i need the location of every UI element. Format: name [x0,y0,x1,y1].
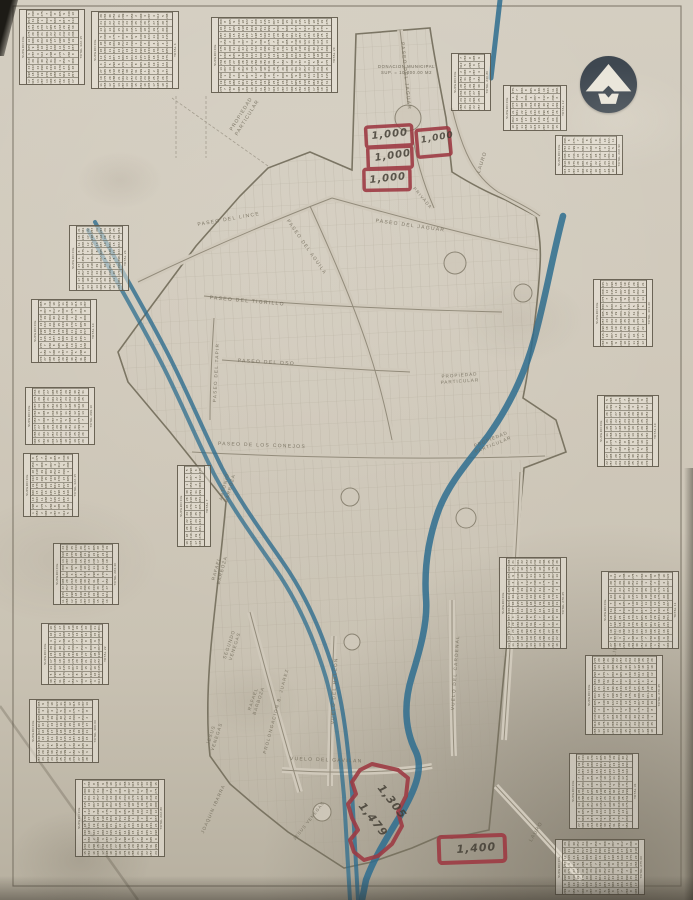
table-column: 315.40 13 287.25 14 300.00 15 262.80 16 … [593,663,656,670]
table-column: 1 350.00 2 300.00 3 287.50 4 312.40 5 29… [511,93,560,100]
table-column: 287.25 14 300.00 15 262.80 16 245.60 17 … [33,402,88,409]
table-column: 2 300.00 3 287.50 4 [459,68,484,75]
owner-label: JOAQUIN IBARRA [200,784,227,835]
table-column: 288.45 21 301.20 22 257.35 23 242.10 24 … [507,558,560,565]
lot-table-content: SUPERFICIE11 268.90 12 315.40 13 287.25 … [54,544,118,604]
table-column: 275.00 7 260.45 8 305.20 9 240.80 10 322… [601,295,646,302]
table-column: 310.15 19 275.90 20 288.45 21 301.20 22 … [563,159,616,167]
table-column: 315.40 13 287.25 14 300.00 15 262.80 16 … [601,331,646,338]
table-column: 305.60 28 218.95 29 284.30 30 252.75 31 … [37,714,92,721]
table-column: 23 242.10 24 296.85 25 233.50 26 270.25 … [39,321,90,328]
street-label: VUELO DEL HALCON [330,657,338,724]
table-total-row: TOTAL 12 [560,86,567,130]
lot-table-content: SUPERFICIE11 268.90 12 315.40 13 287.25 … [92,12,178,88]
table-column: 198.75 18 310.15 19 275.90 20 288.45 21 … [27,71,78,78]
table-total-row: TOTAL 10 [652,396,659,466]
table-column: 287.50 4 312.40 5 298.60 6 275.00 7 260.… [563,860,638,867]
lot-table: SUPERFICIE270.25 27 305.60 28 218.95 29 … [32,300,96,362]
table-column: 2 300.00 3 287.50 4 312.40 5 298.60 6 27… [577,815,632,822]
table-total-row: TOTAL 31 [632,754,639,828]
table-column: 10 322.15 11 268.90 12 315.40 13 287.25 … [31,495,72,502]
table-column: 10 322.15 11 268.90 12 315.40 13 287.25 … [609,627,672,634]
table-column: 350.00 2 300.00 3 287.50 4 312.40 5 298.… [601,302,646,309]
table-column: 287.50 4 312.40 5 298.60 6 275.00 7 260.… [37,741,92,748]
table-column: 288.45 21 301.20 22 257.35 23 242.10 24 … [33,430,88,437]
table-total-row: TOTAL 22 [102,624,109,684]
table-column: 315.40 13 287.25 14 300.00 15 262.80 16 … [83,801,158,808]
table-column: 275.00 7 260.45 8 305.20 9 240.80 10 322… [219,85,331,92]
table-column: 24 296.85 25 233.50 [185,510,204,517]
table-column: 30 252.75 31 299.10 [185,488,204,495]
table-total-row: TOTAL 270.25 [560,558,567,648]
table-column: 270.25 27 305.60 28 218.95 29 284.30 30 … [39,355,90,362]
street-label: PASEO DEL OSO [238,358,295,367]
table-header: SUPERFICIE [570,754,577,828]
table-header: SUPERFICIE [92,12,99,88]
table-column: 11 268.90 12 315.40 13 287.25 14 300.00 … [605,431,652,438]
company-logo [580,56,637,113]
table-column: 1 350.00 2 300.00 3 287.50 4 312.40 5 29… [83,835,158,842]
table-column: 4 312.40 5 298.60 6 275.00 7 260.45 8 30… [49,637,102,644]
lot-table: SUPERFICIE27 305.60 28 218.95 29 284.30 … [602,572,678,648]
table-total-row: TOTAL 11 [672,572,679,648]
table-column: 13 287.25 14 300.00 15 262.80 16 245.60 … [99,26,172,33]
table-column: 296.85 25 233.50 26 270.25 27 305.60 28 … [563,151,616,159]
table-column: 300.00 15 262.80 16 245.60 17 198.75 18 … [31,488,72,495]
lot-table-content: SUPERFICIE16 245.60 17 198.7518 310.15 1… [178,466,210,546]
table-column: 305.20 9 240.80 10 322.15 11 268.90 12 3… [27,44,78,51]
table-column: 218.95 29 284.30 30 252.75 31 299.10 1 3… [507,620,560,627]
table-column: 3 287.50 4 312.40 5 298.60 6 275.00 7 26… [609,634,672,641]
table-column: 9 240.80 10 322.15 11 268.90 12 315.40 1… [563,881,638,888]
table-column: 268.90 12 315.40 13 287.25 14 300.00 15 … [593,727,656,734]
table-column: 245.60 17 198.75 18 310.15 19 275.90 20 … [601,280,646,287]
table-total-row: TOTAL 300.00 [92,700,99,762]
table-column: 245.60 17 198.75 18 310.15 19 275.90 20 … [507,634,560,641]
table-column: 24 296.85 25 233.50 26 270.25 27 305.60 … [609,613,672,620]
table-column: 27 305.60 28 218.95 29 284.30 30 252.75 … [99,67,172,74]
table-column: 260.45 8 305.20 9 240.80 10 322.15 11 26… [61,564,112,571]
table-column: 1 350.00 2 300.00 [185,481,204,488]
street-label: PASEO DEL TAPIR [212,343,220,403]
table-column: 25 233.50 26 270.25 27 305.60 28 218.95 … [577,754,632,761]
table-column: 252.75 31 299.10 1 350.00 2 300.00 3 287… [27,17,78,24]
table-total-row: TOTAL 270.25 [656,656,663,734]
street-label: VUELO DEL CARDENAL [450,635,460,710]
table-header: SUPERFICIE [54,544,61,604]
table-column: 31 299.10 1 350.00 2 300.00 3 287.50 4 3… [605,403,652,410]
table-column: 275.90 20 288.45 21 301.20 22 257.35 23 … [33,395,88,402]
table-column: 26 270.25 27 305.60 28 218.95 29 284.30 … [577,788,632,795]
table-column: 14 300.00 15 262.80 16 245.60 17 198.75 … [27,37,78,44]
lot-table: SUPERFICIE15 262.80 16 245.60 17 198.75 … [76,780,164,856]
table-column: 257.35 23 242.10 24 296.85 25 233.50 26 … [507,627,560,634]
table-column: 25 233.50 26 270.25 27 305.60 28 218.95 … [27,23,78,30]
scanned-plat-map-sheet: PASEO DEL JAGUARPASEO DEL LINCEPASEO DEL… [0,0,693,900]
owner-label: PROPIEDAD PARTICULAR [472,430,512,456]
lot-table-content: SUPERFICIE27 305.60 28 218.95 29 284.30 … [602,572,678,648]
table-column: 5 298.60 6 275.00 7 260.45 8 305.20 9 24… [27,10,78,17]
table-column: 275.00 7 260.45 8 305.20 9 240.80 10 322… [39,341,90,348]
table-header: SUPERFICIE [30,700,37,762]
table-column: 233.50 26 270.25 27 305.60 28 218.95 29 … [33,388,88,395]
table-column: 299.10 1 350.00 2 300.00 3 287.50 4 312.… [219,72,331,79]
table-header: SUPERFICIE [178,466,185,546]
owner-label: RAFAEL BARBOZA [246,684,266,715]
table-column: 240.80 10 322.15 11 268.90 12 315.40 13 … [83,828,158,835]
table-column: 14 300.00 15 262.80 16 245.60 17 198.75 … [609,593,672,600]
arrow-up-emblem-icon [580,56,637,113]
table-column: 26 270.25 27 305.60 [185,502,204,509]
table-column: 4 312.40 5 298.60 6 275.00 7 260.45 8 30… [83,808,158,815]
table-column: 301.20 22 257.35 23 242.10 24 296.85 25 … [507,593,560,600]
table-column: 21 301.20 22 257.35 23 242.10 24 296.85 … [605,417,652,424]
table-column: 23 242.10 24 296.85 25 233.50 26 270.25 … [49,651,102,658]
table-header: SUPERFICIE [556,136,563,174]
table-total-row: TOTAL 322.15 [72,454,79,516]
lot-table-content: SUPERFICIE27 305.60 28 218.95 29 284.30 … [570,754,638,828]
table-header: SUPERFICIE [26,388,33,444]
table-header: SUPERFICIE [20,10,27,84]
table-column: 284.30 30 252.75 31 299.10 1 350.00 2 30… [83,787,158,794]
table-column: 288.45 21 301.20 22 257.35 [459,103,484,110]
table-column: 5 298.60 6 275.00 7 260.45 8 305.20 9 24… [605,396,652,403]
table-column: 262.80 16 245.60 17 198.75 18 310.15 19 … [511,115,560,122]
table-column: 310.15 19 275.90 20 288.45 21 301.20 22 … [61,551,112,558]
table-column: 350.00 2 300.00 3 287.50 4 312.40 5 298.… [31,461,72,468]
handwritten-area-value: 1,479 [356,800,391,839]
labels-and-tables-overlay: PASEO DEL JAGUARPASEO DEL LINCEPASEO DEL… [0,0,693,900]
table-column: 10 322.15 11 268.90 12 315.40 13 287.25 … [511,123,560,130]
table-column: 19 275.90 20 288.45 21 301.20 22 257.35 … [99,74,172,81]
table-column: 268.90 12 315.40 13 287.25 14 300.00 15 … [601,287,646,294]
table-column: 6 275.00 7 260.45 8 305.20 9 240.80 10 3… [77,247,122,254]
table-column: 240.80 10 322.15 11 268.90 12 315.40 13 … [37,734,92,741]
table-column: 29 284.30 30 252.75 31 299.10 1 350.00 2… [49,644,102,651]
lot-table: SUPERFICIE11 268.90 12 315.40 13 287.25 … [54,544,118,604]
table-column: 20 288.45 21 301.20 22 257.35 23 242.10 … [577,794,632,801]
table-column: 21 301.20 22 257.35 23 242.10 24 296.85 … [511,108,560,115]
table-column: 300.00 3 287.50 4 312.40 5 298.60 6 275.… [37,707,92,714]
table-column: 12 315.40 13 287.25 14 300.00 15 262.80 … [563,854,638,861]
table-column: 262.80 16 245.60 17 198.75 18 310.15 19 … [593,691,656,698]
handwritten-area-value: 1,000 [371,127,409,142]
table-column: 305.20 9 240.80 10 322.15 11 268.90 12 3… [39,300,90,307]
handwritten-area-value: 1,000 [369,171,407,186]
table-column: 19 275.90 20 288.45 21 301.20 22 257.35 … [31,482,72,489]
table-column: 21 301.20 22 257.35 23 242.10 24 296.85 … [609,586,672,593]
lot-table: SUPERFICIE10 322.15 11 268.90 12 315.40 … [504,86,566,130]
handwritten-area-value: 1,400 [456,840,497,856]
table-column: 30 252.75 31 299.10 1 350.00 2 300.00 3 … [49,677,102,684]
street-label: PASEO DEL LINCE [197,211,260,228]
table-column: 26 270.25 27 305.60 28 218.95 29 284.30 … [605,410,652,417]
table-column: 3 287.50 4 312.40 [185,473,204,480]
lot-table-content: SUPERFICIE30 252.75 31 299.10 1 350.00 2… [42,624,108,684]
table-header: SUPERFICIE [598,396,605,466]
table-total-row: TOTAL 240.80 [484,54,491,110]
lot-table-content: SUPERFICIE22 257.35 23 242.10 24 296.85 … [598,396,658,466]
table-header: SUPERFICIE [32,300,39,362]
table-column: 300.00 3 287.50 4 312.40 5 298.60 6 275.… [507,579,560,586]
table-column: 350.00 2 300.00 3 287.50 4 312.40 5 298.… [33,416,88,423]
table-column: 17 198.75 18 310.15 19 275.90 20 288.45 … [77,276,122,283]
table-column: 2 300.00 3 287.50 4 312.40 5 298.60 6 27… [61,571,112,578]
table-column: 23 242.10 24 296.85 25 [459,96,484,103]
table-column: 300.00 15 262.80 16 245.60 17 198.75 18 … [507,565,560,572]
table-total-row: TOTAL 299.10 [88,388,95,444]
table-column: 299.10 1 350.00 2 300.00 3 287.50 4 312.… [563,887,638,894]
table-column: 29 284.30 30 252.75 31 299.10 1 350.00 2… [99,12,172,19]
table-column: 18 310.15 19 275.90 20 288.45 21 301.20 … [83,821,158,828]
table-column: 27 305.60 28 218.95 29 284.30 30 252.75 … [577,821,632,828]
table-column: 310.15 19 275.90 20 288.45 21 301.20 22 … [593,720,656,727]
table-column: 17 198.75 18 310.15 19 275.90 20 288.45 … [49,657,102,664]
table-column: 5 298.60 6 275.00 7 260.45 8 305.20 9 24… [49,671,102,678]
table-column: 13 287.25 14 300.00 15 262.80 16 245.60 … [61,557,112,564]
table-column: 1 350.00 2 300.00 3 287.50 4 312.40 5 29… [77,254,122,261]
table-column: 20 288.45 21 301.20 22 257.35 23 242.10 … [99,47,172,54]
table-column: 31 299.10 1 350.00 2 300.00 3 287.50 4 3… [609,607,672,614]
table-total-row: TOTAL 14 [90,300,97,362]
table-column: 7 260.45 8 305.20 9 240.80 10 322.15 11 … [577,774,632,781]
lot-table: SUPERFICIE315.40 13 287.25 14 300.00 15 … [556,136,622,174]
table-column: 198.75 18 310.15 19 275.90 20 288.45 21 … [563,874,638,881]
table-column: 11 268.90 12 315.40 13 287.25 14 300.00 … [99,81,172,88]
table-column: 6 275.00 7 260.45 8 305.20 9 240.80 10 [31,454,72,461]
table-column: 275.00 7 260.45 8 305.20 9 240.80 10 322… [511,86,560,93]
table-column: 27 305.60 28 218.95 29 284.30 30 252.75 … [605,452,652,459]
lot-table-content: SUPERFICIE12 315.40 13 287.25 14 300.00 … [70,226,128,290]
owner-label: RAFAEL BARBOZA [210,554,229,585]
table-header: SUPERFICIE [594,280,601,346]
table-column: 16 245.60 17 198.75 18 310.15 19 275.90 … [77,233,122,240]
table-column: 6 275.00 7 260.45 8 305.20 9 240.80 10 3… [605,438,652,445]
table-column: 270.25 27 305.60 28 218.95 29 284.30 30 … [33,423,88,430]
table-header: SUPERFICIE [602,572,609,648]
table-column: 1 350.00 2 300.00 3 287.50 4 312.40 5 29… [219,38,331,45]
table-column: 218.95 29 284.30 30 252.75 31 299.10 1 3… [39,314,90,321]
lot-table-content: SUPERFICIE300.00 15 262.80 16 245.60 17 … [26,388,94,444]
lot-table-content: SUPERFICIE299.10 1 350.00 2 300.00 3 287… [556,840,644,894]
table-column: 233.50 26 270.25 27 305.60 [459,89,484,96]
lot-table: SUPERFICIE16 245.60 17 198.7518 310.15 1… [178,466,210,546]
table-column: 305.20 9 240.80 10 322.15 11 268.90 12 3… [37,700,92,707]
table-column: 16 245.60 17 198.75 18 310.15 19 275.90 … [49,624,102,631]
lot-table: SUPERFICIE22 257.35 23 242.10 24 296.85 … [598,396,658,466]
table-total-row: TOTAL 275.00 [638,840,645,894]
table-column: 198.75 18 310.15 19 275.90 20 288.45 21 … [39,328,90,335]
table-column: 260.45 8 305.20 9 240.80 10 322.15 11 26… [33,409,88,416]
table-header: SUPERFICIE [76,780,83,856]
table-column: 288.45 21 301.20 22 257.35 23 242.10 24 … [563,847,638,854]
owner-label: PROPIEDAD PARTICULAR [228,95,261,137]
table-column: 262.80 16 245.60 17 198.75 18 310.15 19 … [507,600,560,607]
table-header: SUPERFICIE [504,86,511,130]
table-column: 7 260.45 8 305.20 9 240.80 10 322.15 11 … [609,600,672,607]
lot-table-content: SUPERFICIE1 350.00 2 300.00 3 287.50 4 3… [24,454,78,516]
table-column: 242.10 24 296.85 25 233.50 26 270.25 27 … [83,842,158,849]
table-header: SUPERFICIE [556,840,563,894]
lot-table: SUPERFICIE30 252.75 31 299.10 1 350.00 2… [42,624,108,684]
owner-label: ANTONIO BARBOZA [218,472,237,503]
table-column: 245.60 17 198.75 18 310.15 19 275.90 20 … [61,591,112,598]
owner-label: LAURO [476,151,489,174]
lot-table: SUPERFICIE275.00 7 260.45 8 305.20 9 240… [212,18,337,92]
table-column: 1 350.00 2 300.00 3 287.50 4 312.40 5 29… [577,781,632,788]
table-column: 1 350.00 2 300.00 3 287.50 4 312.40 5 [31,509,72,516]
table-column: 3 287.50 4 312.40 5 298.60 6 275.00 7 26… [39,307,90,314]
lot-table: SUPERFICIE27 305.60 28 218.95 29 284.30 … [570,754,638,828]
table-column: 5 298.60 6 275.00 7 260.45 8 305.20 9 24… [99,33,172,40]
table-column: 16 245.60 17 198.75 [185,539,204,546]
owner-label: LAURO [528,821,545,844]
table-column: 28 218.95 29 284.30 30 [459,82,484,89]
table-column: 21 301.20 22 257.35 23 242.10 24 296.85 … [83,794,158,801]
table-column: 7 260.45 8 305.20 9 240.80 10 322.15 11 … [219,52,331,59]
table-column: 27 305.60 28 218.95 29 284.30 30 252.75 … [77,262,122,269]
table-total-row: TOTAL 7 [204,466,211,546]
table-column: 298.60 6 275.00 7 260.45 8 305.20 9 240.… [563,136,616,144]
street-label: PROLONGACION B. JUAREZ [262,668,290,754]
table-column: 14 300.00 15 262.80 16 245.60 17 198.75 … [577,801,632,808]
table-column: 13 287.25 14 300.00 15 262.80 16 245.60 … [577,767,632,774]
table-column: 240.80 10 322.15 11 268.90 12 315.40 13 … [507,606,560,613]
table-column: 15 262.80 16 245.60 17 198.75 18 310.15 … [83,849,158,856]
table-column: 22 257.35 23 242.10 24 296.85 25 233.50 … [61,584,112,591]
table-column: 27 305.60 28 218.95 29 284.30 30 252.75 … [609,641,672,648]
lot-table-content: SUPERFICIE257.35 23 242.10 24 296.85 25 … [30,700,98,762]
table-column: 7 260.45 8 305.20 9 [459,54,484,61]
table-column: 22 257.35 23 242.10 24 296.85 25 233.50 … [605,459,652,466]
street-label: PASEO DEL AGUILA [285,219,327,276]
lot-table-content: SUPERFICIE10 322.15 11 268.90 12 315.40 … [504,86,566,130]
table-header: SUPERFICIE [212,18,219,92]
lot-table-content: SUPERFICIE315.40 13 287.25 14 300.00 15 … [556,136,622,174]
table-column: 1 350.00 2 300.00 3 287.50 4 312.40 5 29… [39,348,90,355]
lot-table: SUPERFICIE268.90 12 315.40 13 287.25 14 … [586,656,662,734]
table-column: 312.40 5 298.60 6 275.00 [459,61,484,68]
table-column: 287.25 14 300.00 15 262.80 16 245.60 17 … [219,31,331,38]
table-column: 270.25 27 305.60 28 218.95 29 284.30 30 … [83,815,158,822]
table-header: SUPERFICIE [70,226,77,290]
table-column: 22 257.35 23 242.10 [185,517,204,524]
table-column: 28 218.95 29 284.30 [185,495,204,502]
table-column: 252.75 31 299.10 1 350.00 [459,75,484,82]
street-label: PASEO DEL TIGRILLO [209,295,285,308]
table-column: 3 287.50 4 312.40 5 298.60 6 275.00 7 26… [27,50,78,57]
table-column: 21 301.20 22 257.35 23 242.10 24 296.85 … [77,226,122,233]
table-column: 10 322.15 11 268.90 12 315.40 13 287.25 … [49,631,102,638]
lot-table: SUPERFICIE12 315.40 13 287.25 14 300.00 … [70,226,128,290]
table-column: 275.90 20 288.45 21 301.20 22 257.35 23 … [27,30,78,37]
table-column: 275.90 20 288.45 21 301.20 22 257.35 23 … [593,656,656,663]
table-column: 218.95 29 284.30 30 252.75 31 299.10 1 3… [37,748,92,755]
table-column: 287.50 4 312.40 5 298.60 6 275.00 7 260.… [507,613,560,620]
table-column: 305.60 28 218.95 29 284.30 30 252.75 31 … [507,586,560,593]
street-label: PRIVADA [412,186,433,210]
table-column: 26 270.25 27 305.60 28 218.95 29 284.30 … [219,25,331,32]
table-column: 21 301.20 22 257.35 23 242.10 24 296.85 … [99,19,172,26]
handwritten-area-value: 1,000 [374,148,412,164]
table-header: SUPERFICIE [586,656,593,734]
lot-table-content: SUPERFICIE12 315.40 13 287.25 14 300.00 … [20,10,84,84]
table-column: 12 315.40 13 287.25 14 300.00 15 262.80 … [99,53,172,60]
table-column: 20 288.45 21 301.20 [185,524,204,531]
table-column: 13 287.25 14 300.00 15 262.80 16 245.60 … [219,65,331,72]
table-column: 298.60 6 275.00 7 260.45 8 305.20 9 240.… [593,670,656,677]
lot-table-content: SUPERFICIE268.90 12 315.40 13 287.25 14 … [586,656,662,734]
lot-table-content: SUPERFICIE288.45 21 301.20 22 257.3523 2… [452,54,490,110]
lot-table: SUPERFICIE12 315.40 13 287.25 14 300.00 … [20,10,84,84]
table-header: SUPERFICIE [24,454,31,516]
table-column: 270.25 27 305.60 28 218.95 29 284.30 30 … [511,101,560,108]
table-column: 284.30 30 252.75 31 299.10 1 350.00 2 30… [593,677,656,684]
table-column: 301.20 22 257.35 23 242.10 24 296.85 25 … [37,721,92,728]
table-total-row: TOTAL 322.15 [78,10,85,84]
table-total-row: TOTAL 20 [331,18,338,92]
table-header: SUPERFICIE [42,624,49,684]
table-column: 17 198.75 18 310.15 19 275.90 20 288.45 … [609,620,672,627]
table-total-row: TOTAL 6 [172,12,179,88]
lot-table-content: SUPERFICIE270.25 27 305.60 28 218.95 29 … [32,300,96,362]
table-column: 7 260.45 8 305.20 9 240.80 10 322.15 11 … [83,780,158,787]
lot-table: SUPERFICIE11 268.90 12 315.40 13 287.25 … [92,12,178,88]
lot-table: SUPERFICIE257.35 23 242.10 24 296.85 25 … [30,700,98,762]
lot-table: SUPERFICIE300.00 15 262.80 16 245.60 17 … [26,388,94,444]
table-column: 350.00 2 300.00 3 287.50 4 312.40 5 298.… [593,706,656,713]
table-column: 24 296.85 25 233.50 26 270.25 27 305.60 … [61,544,112,551]
lot-table: SUPERFICIE299.10 1 350.00 2 300.00 3 287… [556,840,644,894]
owner-label: JESUS VENEGAS [204,720,224,751]
table-column: 322.15 11 268.90 12 315.40 13 287.25 14 … [507,641,560,648]
table-column: 18 310.15 19 275.90 [185,531,204,538]
table-column: 305.20 9 240.80 10 322.15 11 268.90 12 3… [507,572,560,579]
table-column: 257.35 23 242.10 24 296.85 25 233.50 26 … [37,755,92,762]
table-header: SUPERFICIE [500,558,507,648]
table-column: 11 268.90 12 315.40 13 287.25 14 300.00 … [61,597,112,604]
table-column: 305.20 9 240.80 10 322.15 11 268.90 12 3… [593,699,656,706]
table-column: 242.10 24 296.85 25 233.50 26 270.25 27 … [31,475,72,482]
lot-table: SUPERFICIE1 350.00 2 300.00 3 287.50 4 3… [24,454,78,516]
table-total-row: TOTAL 262.80 [158,780,165,856]
table-column: 12 315.40 13 287.25 14 300.00 15 262.80 … [39,334,90,341]
table-column: 19 275.90 20 288.45 21 301.20 22 257.35 … [577,761,632,768]
table-column: 198.75 18 310.15 19 275.90 20 288.45 21 … [601,324,646,331]
lot-table: SUPERFICIE260.45 8 305.20 9 240.80 10 32… [594,280,652,346]
table-column: 22 257.35 23 242.10 24 296.85 25 233.50 … [77,269,122,276]
table-column: 12 315.40 13 287.25 14 300.00 15 262.80 … [27,77,78,84]
table-column: 4 312.40 5 298.60 6 275.00 7 260.45 8 30… [609,572,672,579]
table-column: 1 350.00 2 300.00 3 287.50 4 312.40 5 29… [605,445,652,452]
table-column: 29 284.30 30 252.75 31 299.10 1 350.00 2… [563,840,638,847]
table-column: 315.40 13 287.25 14 300.00 15 262.80 16 … [563,166,616,174]
lot-table: SUPERFICIE288.45 21 301.20 22 257.3523 2… [452,54,490,110]
table-column: 305.60 28 218.95 29 284.30 30 252.75 31 … [61,577,112,584]
table-column: 26 270.25 27 305.60 28 218.95 29 284.30 … [563,867,638,874]
handwritten-area-value: 1,305 [375,782,410,821]
owner-label: JESUS VENEGAS [292,800,326,841]
table-column: 233.50 26 270.25 27 305.60 28 218.95 29 … [593,713,656,720]
table-total-row: TOTAL 284.30 [112,544,119,604]
table-column: 257.35 23 242.10 24 296.85 25 233.50 26 … [601,317,646,324]
table-column: 16 245.60 17 198.75 18 310.15 19 275.90 … [605,424,652,431]
street-label: PASEO DE LOS CONEJOS [218,441,306,450]
table-column: 11 268.90 12 315.40 13 287.25 14 300.00 … [77,240,122,247]
table-column: 298.60 6 275.00 7 260.45 8 305.20 9 240.… [31,502,72,509]
lot-table-content: SUPERFICIE260.45 8 305.20 9 240.80 10 32… [594,280,652,346]
table-column: 252.75 31 299.10 1 350.00 2 300.00 3 287… [563,144,616,152]
